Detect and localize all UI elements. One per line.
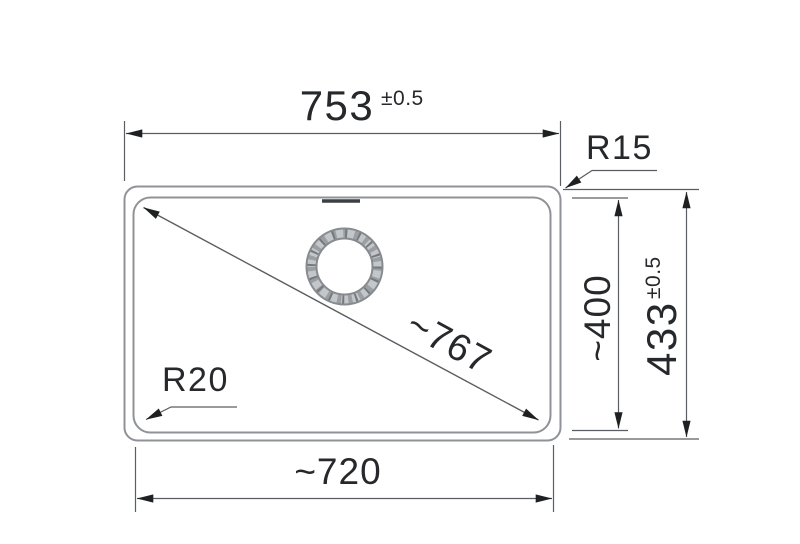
dim-tolerance-top-width: ±0.5 [381, 87, 424, 110]
sink-outline [125, 187, 561, 441]
dim-label-bottom-width: ~720 [294, 451, 381, 492]
radius-label-top-right: R15 [586, 129, 653, 167]
radius-label-bottom-left: R20 [162, 361, 229, 399]
dim-inner-height: ~400 [572, 198, 628, 431]
leader-line [566, 171, 658, 189]
sink-dimension-drawing: 753 ±0.5 R15 ~400 433 ±0.5 ~767 R20 [0, 0, 800, 544]
dim-label-outer-height: 433 [638, 301, 685, 376]
dim-top-width: 753 ±0.5 [125, 82, 561, 186]
sink-outer-rim [125, 187, 561, 441]
technical-drawing-page: 753 ±0.5 R15 ~400 433 ±0.5 ~767 R20 [0, 0, 800, 544]
dim-label-inner-height: ~400 [577, 274, 618, 361]
dim-label-top-width: 753 [300, 82, 375, 129]
dim-bottom-width: ~720 [136, 445, 554, 512]
dim-tolerance-outer-height: ±0.5 [642, 256, 665, 299]
leader-radius-top-right: R15 [566, 129, 658, 188]
